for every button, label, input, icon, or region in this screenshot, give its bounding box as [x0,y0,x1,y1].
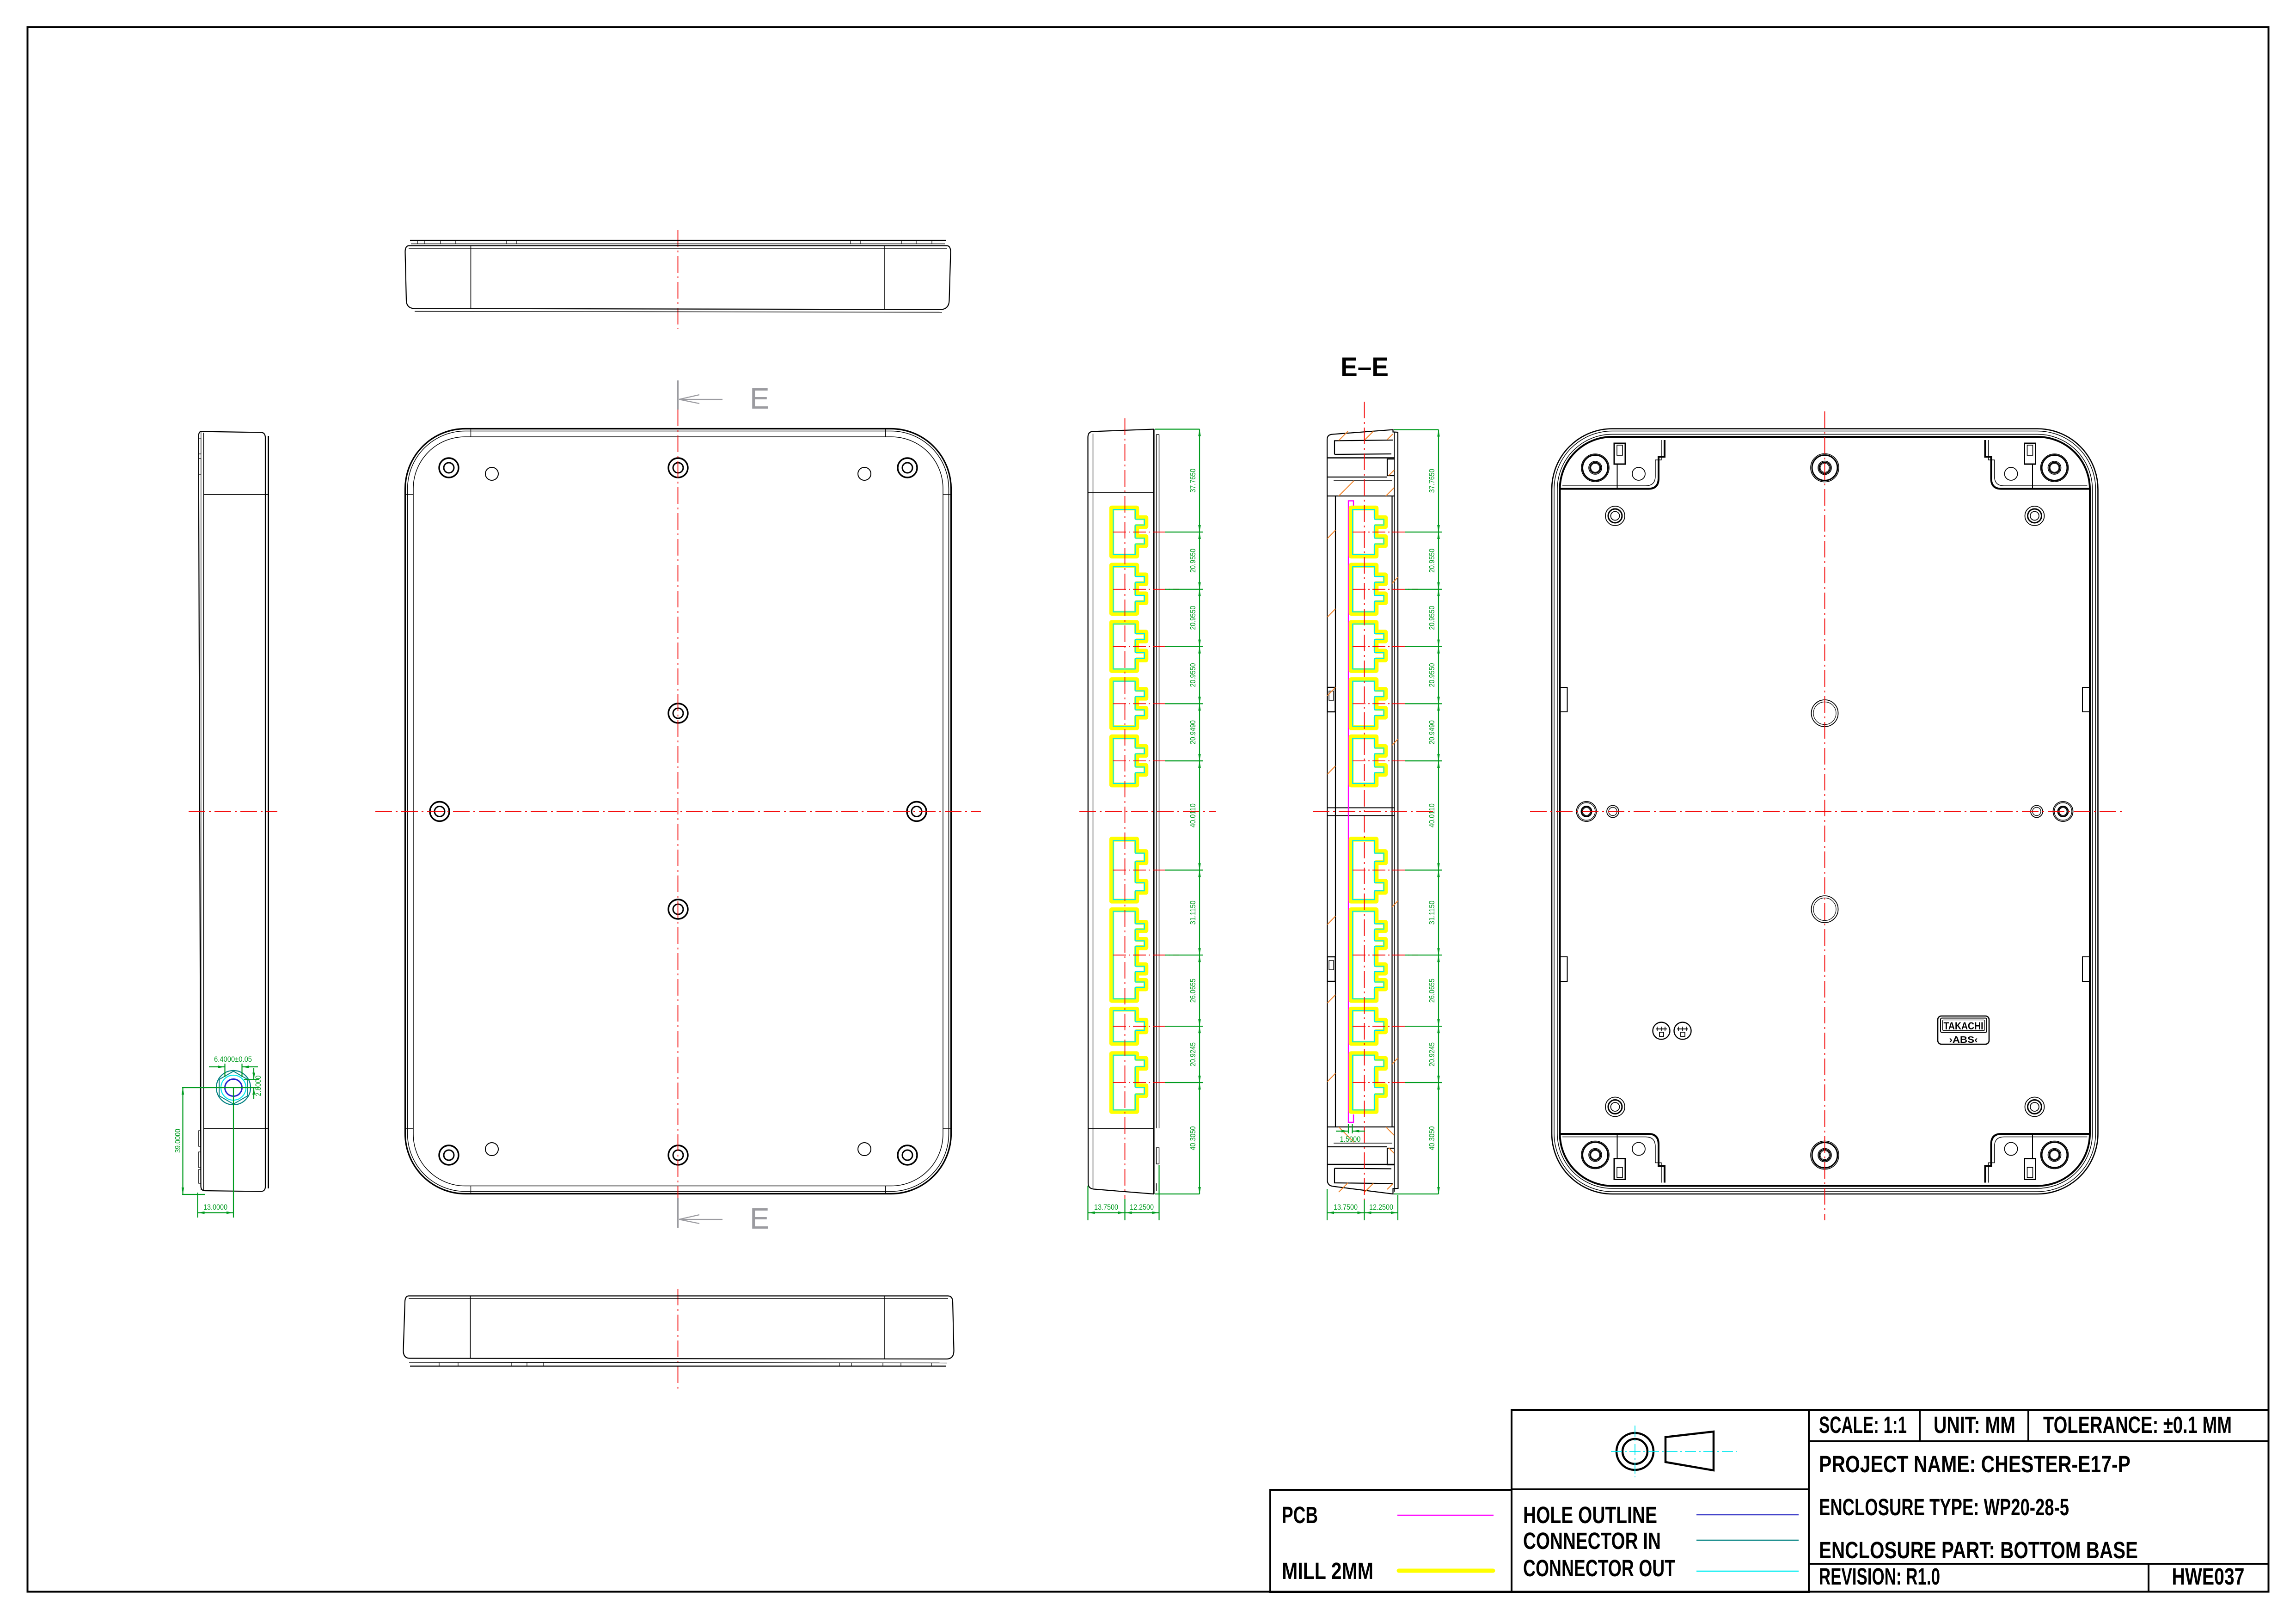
svg-text:SCALE: 1:1: SCALE: 1:1 [1819,1412,1907,1438]
svg-text:1.5000: 1.5000 [1340,1135,1361,1144]
svg-text:20.9550: 20.9550 [1188,549,1197,573]
svg-text:20.9550: 20.9550 [1427,549,1436,573]
svg-text:TAKACHI: TAKACHI [1944,1020,1984,1032]
svg-text:31.1150: 31.1150 [1427,900,1436,924]
svg-text:40.0110: 40.0110 [1188,803,1197,827]
svg-text:MILL 2MM: MILL 2MM [1282,1558,1373,1584]
svg-text:37.7650: 37.7650 [1188,469,1197,493]
svg-text:26.0655: 26.0655 [1188,979,1197,1003]
svg-text:REVISION: R1.0: REVISION: R1.0 [1819,1563,1940,1590]
svg-text:20.9550: 20.9550 [1188,606,1197,630]
svg-text:20.9245: 20.9245 [1427,1042,1436,1066]
svg-text:20.9550: 20.9550 [1188,663,1197,687]
svg-text:20.9490: 20.9490 [1427,720,1436,744]
svg-text:HOLE OUTLINE: HOLE OUTLINE [1523,1502,1657,1528]
svg-text:13.7500: 13.7500 [1094,1203,1118,1212]
svg-text:37.7650: 37.7650 [1427,469,1436,493]
svg-text:E–E: E–E [1341,352,1389,382]
svg-text:CONNECTOR OUT: CONNECTOR OUT [1523,1555,1675,1581]
svg-text:HWE037: HWE037 [2172,1563,2245,1590]
svg-text:PCB: PCB [1282,1502,1318,1528]
svg-text:26.0655: 26.0655 [1427,979,1436,1003]
svg-text:13.0000: 13.0000 [203,1203,227,1212]
svg-text:CONNECTOR IN: CONNECTOR IN [1523,1528,1661,1554]
svg-text:39.0000: 39.0000 [173,1129,182,1153]
svg-text:40.3050: 40.3050 [1427,1126,1436,1150]
svg-text:E: E [750,1202,770,1235]
svg-text:20.9550: 20.9550 [1427,663,1436,687]
svg-text:13.7500: 13.7500 [1334,1203,1358,1212]
svg-text:PROJECT NAME: CHESTER-E17-P: PROJECT NAME: CHESTER-E17-P [1819,1451,2131,1477]
svg-text:31.1150: 31.1150 [1188,900,1197,924]
svg-text:12.2500: 12.2500 [1130,1203,1154,1212]
svg-text:6.4000±0.05: 6.4000±0.05 [214,1055,252,1064]
svg-text:20.9490: 20.9490 [1188,720,1197,744]
svg-text:40.0110: 40.0110 [1427,803,1436,827]
svg-text:TOLERANCE: ±0.1 MM: TOLERANCE: ±0.1 MM [2043,1412,2232,1438]
svg-text:›ABS‹: ›ABS‹ [1949,1035,1978,1045]
svg-text:40.3050: 40.3050 [1188,1126,1197,1150]
svg-text:E: E [750,382,770,415]
svg-text:12.2500: 12.2500 [1369,1203,1393,1212]
svg-text:20.9550: 20.9550 [1427,606,1436,630]
svg-text:20.9245: 20.9245 [1188,1042,1197,1066]
svg-text:ENCLOSURE PART: BOTTOM BASE: ENCLOSURE PART: BOTTOM BASE [1819,1537,2138,1563]
svg-text:2.8000: 2.8000 [254,1076,263,1096]
svg-text:ENCLOSURE TYPE: WP20-28-5: ENCLOSURE TYPE: WP20-28-5 [1819,1494,2069,1520]
svg-text:UNIT: MM: UNIT: MM [1934,1412,2015,1438]
